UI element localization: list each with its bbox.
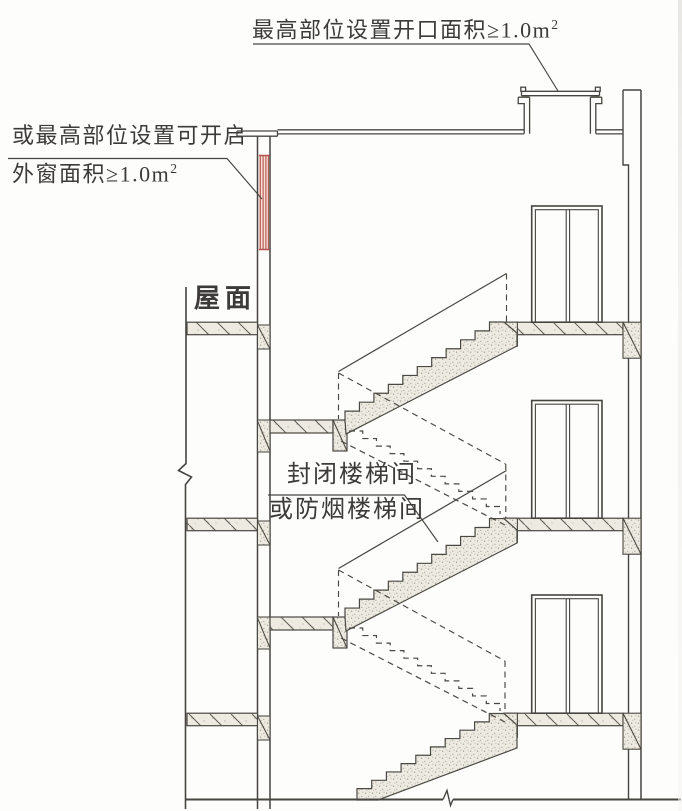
hatch-lid-tick bbox=[521, 87, 526, 91]
annotation-openable-window-line2: 外窗面积≥1.0m2 bbox=[12, 161, 179, 187]
section-drawing bbox=[0, 0, 682, 811]
annotation-text: 外窗面积≥1.0m bbox=[12, 161, 170, 186]
annotation-openable-window-line1: 或最高部位设置可开启 bbox=[12, 123, 247, 148]
doors bbox=[532, 206, 602, 713]
stair-wall bbox=[237, 131, 278, 809]
leader-roof-opening bbox=[253, 44, 558, 91]
landing-slab bbox=[270, 420, 333, 433]
openable-window bbox=[259, 155, 270, 250]
dashed-flight-soffit bbox=[341, 638, 505, 722]
landing-slab bbox=[270, 617, 333, 630]
floor-slab bbox=[187, 322, 258, 335]
stair-flight bbox=[345, 322, 517, 434]
stair-flights bbox=[345, 322, 517, 800]
floor-slab bbox=[187, 518, 258, 531]
annotation-roof-opening: 最高部位设置开口面积≥1.0m2 bbox=[252, 17, 560, 43]
stair-flight bbox=[357, 714, 517, 800]
stair-wall-beams bbox=[258, 325, 271, 740]
right-wall-beams bbox=[623, 322, 641, 749]
floor-slab bbox=[505, 322, 623, 335]
roof-line bbox=[278, 130, 624, 134]
floor-slab bbox=[505, 518, 623, 531]
left-floor-slabs bbox=[187, 322, 258, 726]
right-wall bbox=[623, 90, 641, 799]
stairwell-label-line1: 封闭楼梯间 bbox=[287, 462, 417, 490]
roof-hatch bbox=[518, 87, 602, 134]
annotation-text: 最高部位设置开口面积≥1.0m bbox=[252, 17, 551, 42]
left-wall bbox=[179, 287, 192, 809]
door bbox=[532, 401, 602, 519]
hatch-curb-left bbox=[518, 97, 529, 134]
stair-flight bbox=[345, 519, 517, 631]
stairwell-label-line2: 或防烟楼梯间 bbox=[269, 497, 425, 525]
right-floor-slabs bbox=[505, 322, 623, 726]
superscript: 2 bbox=[170, 161, 178, 176]
half-landings bbox=[270, 420, 347, 648]
hatch-curb-right bbox=[590, 97, 601, 134]
hatch-lid-tick bbox=[595, 87, 600, 91]
leader-lines bbox=[8, 44, 558, 542]
floor-slab bbox=[187, 713, 258, 726]
stair-section-figure: 最高部位设置开口面积≥1.0m2 或最高部位设置可开启 外窗面积≥1.0m2 屋… bbox=[0, 0, 682, 811]
door bbox=[532, 206, 602, 322]
dashed-flight bbox=[349, 628, 500, 711]
scan-edge-shadow bbox=[678, 0, 682, 811]
door bbox=[532, 595, 602, 713]
break-symbol bbox=[443, 791, 453, 806]
roof-surface-label: 屋面 bbox=[194, 284, 256, 314]
superscript: 2 bbox=[551, 17, 559, 32]
ground-line bbox=[186, 791, 681, 806]
floor-slab bbox=[505, 713, 623, 726]
hatch-lid bbox=[522, 91, 600, 95]
